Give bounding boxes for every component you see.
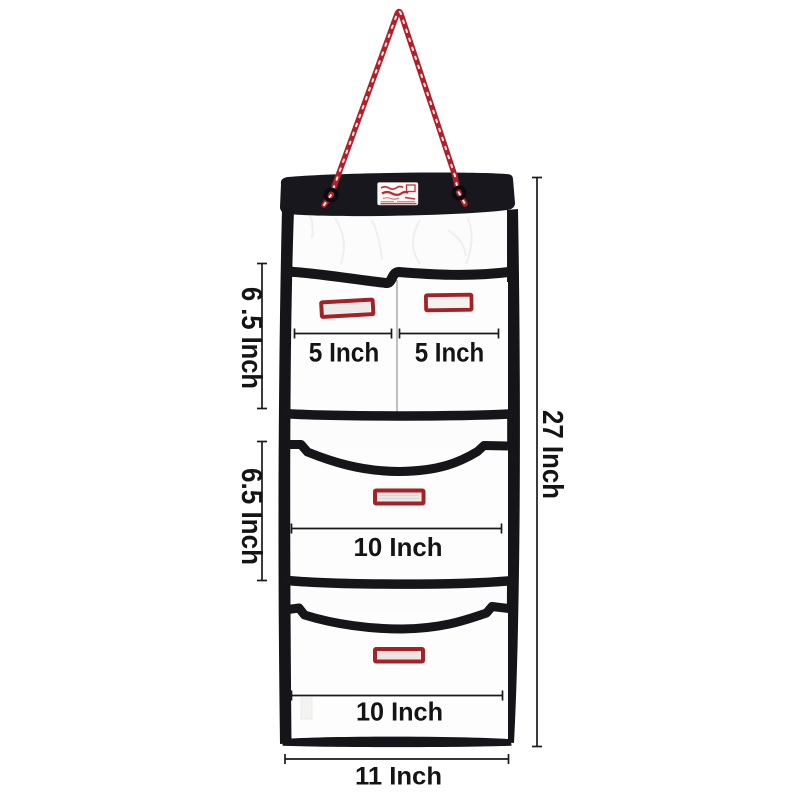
svg-text:11 Inch: 11 Inch (355, 763, 442, 791)
svg-text:5 Inch: 5 Inch (415, 338, 485, 368)
svg-text:5 Inch: 5 Inch (309, 338, 380, 368)
svg-text:6 .5 Inch: 6 .5 Inch (235, 287, 267, 389)
svg-text:10 Inch: 10 Inch (354, 532, 443, 562)
svg-text:10 Inch: 10 Inch (356, 697, 443, 727)
svg-text:27 Inch: 27 Inch (536, 410, 568, 499)
svg-text:6.5 Inch: 6.5 Inch (235, 468, 267, 565)
